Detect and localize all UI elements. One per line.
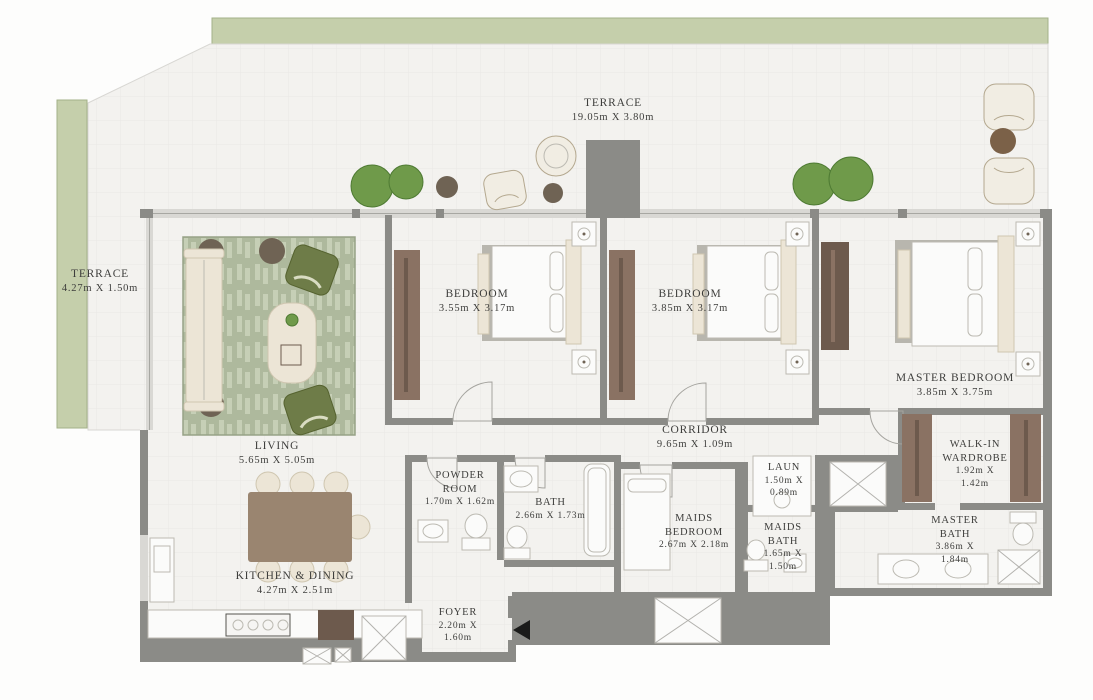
room-dims: 9.65m X 1.09m <box>630 438 760 452</box>
toilet <box>462 538 490 550</box>
master-bed <box>912 242 998 346</box>
label-maids-bedroom: MAIDS BEDROOM2.67m X 2.18m <box>644 512 744 552</box>
room-name: TERRACE <box>533 96 693 111</box>
headboard <box>781 240 796 344</box>
room-dims: 2.20m X 1.60m <box>413 620 503 645</box>
floor-plan: TERRACE19.05m X 3.80m TERRACE4.27m X 1.5… <box>0 0 1093 700</box>
nightstand <box>572 222 596 246</box>
plant <box>793 163 835 205</box>
room-name: KITCHEN & DINING <box>215 569 375 584</box>
room-dims: 5.65m X 5.05m <box>217 454 337 468</box>
room-name: MAIDS BEDROOM <box>644 512 744 539</box>
room-dims: 1.70m X 1.62m <box>414 496 506 508</box>
room-dims: 19.05m X 3.80m <box>533 111 693 125</box>
room-name: BATH <box>503 496 598 510</box>
headboard <box>998 236 1014 352</box>
room-name: BEDROOM <box>417 287 537 302</box>
room-dims: 3.85m X 3.17m <box>630 302 750 316</box>
headboard <box>566 240 581 344</box>
label-corridor: CORRIDOR9.65m X 1.09m <box>630 423 760 452</box>
label-terrace-left: TERRACE4.27m X 1.50m <box>40 267 160 296</box>
label-laundry: LAUN1.50m X 0.89m <box>756 461 812 499</box>
room-name: BEDROOM <box>630 287 750 302</box>
outdoor-chair <box>984 158 1034 204</box>
room-dims: 3.55m X 3.17m <box>417 302 537 316</box>
room-dims: 2.67m X 2.18m <box>644 539 744 551</box>
planter-top <box>212 18 1048 44</box>
label-powder-room: POWDER ROOM1.70m X 1.62m <box>414 469 506 509</box>
room-dims: 3.85m X 3.75m <box>875 386 1035 400</box>
bed-bench <box>898 250 910 338</box>
room-name: MASTER BATH <box>905 514 1005 541</box>
room-dims: 4.27m X 1.50m <box>40 282 160 296</box>
room-dims: 4.27m X 2.51m <box>215 584 375 598</box>
living-room-furniture <box>183 237 355 437</box>
side-table <box>259 238 285 264</box>
label-terrace-top: TERRACE19.05m X 3.80m <box>533 96 693 125</box>
label-foyer: FOYER2.20m X 1.60m <box>413 606 503 644</box>
label-kitchen-dining: KITCHEN & DINING4.27m X 2.51m <box>215 569 375 598</box>
label-living: LIVING5.65m X 5.05m <box>217 439 337 468</box>
nightstand <box>786 222 809 246</box>
label-master-bedroom: MASTER BEDROOM3.85m X 3.75m <box>875 371 1035 400</box>
dining-table <box>248 492 352 562</box>
room-name: FOYER <box>413 606 503 620</box>
room-dims: 2.66m X 1.73m <box>503 510 598 522</box>
kitchen-cabinet <box>318 610 354 640</box>
room-name: LAUN <box>756 461 812 475</box>
table-plant <box>286 314 298 326</box>
label-bedroom-2: BEDROOM3.85m X 3.17m <box>630 287 750 316</box>
pillow <box>550 294 563 332</box>
lounge-chair <box>536 136 576 176</box>
pillow <box>968 294 982 336</box>
side-table <box>543 183 563 203</box>
room-name: WALK-IN WARDROBE <box>925 438 1025 465</box>
pillow <box>765 294 778 332</box>
side-table <box>436 176 458 198</box>
label-walk-in-wardrobe: WALK-IN WARDROBE1.92m X 1.42m <box>925 438 1025 490</box>
room-dims: 3.86m X 1.84m <box>905 541 1005 566</box>
room-name: LIVING <box>217 439 337 454</box>
room-name: POWDER ROOM <box>414 469 506 496</box>
outdoor-table <box>990 128 1016 154</box>
nightstand <box>572 350 596 374</box>
plant <box>351 165 393 207</box>
label-bedroom-1: BEDROOM3.55m X 3.17m <box>417 287 537 316</box>
toilet <box>504 548 530 559</box>
room-name: CORRIDOR <box>630 423 760 438</box>
plant <box>829 157 873 201</box>
label-master-bath: MASTER BATH3.86m X 1.84m <box>905 514 1005 566</box>
room-name: MASTER BEDROOM <box>875 371 1035 386</box>
plant <box>389 165 423 199</box>
sink <box>504 466 538 492</box>
room-name: TERRACE <box>40 267 160 282</box>
pillow <box>765 252 778 290</box>
label-bath: BATH2.66m X 1.73m <box>503 496 598 522</box>
room-name: MAIDS BATH <box>749 521 817 548</box>
terrace-column <box>586 140 640 218</box>
pillow <box>628 479 666 492</box>
outdoor-chair <box>984 84 1034 130</box>
nightstand <box>1016 222 1040 246</box>
room-dims: 1.92m X 1.42m <box>925 465 1025 490</box>
pillow <box>550 252 563 290</box>
toilet <box>1010 512 1036 523</box>
room-dims: 1.50m X 0.89m <box>756 475 812 500</box>
planter-left <box>57 100 87 428</box>
outdoor-chair <box>482 169 528 211</box>
label-maids-bath: MAIDS BATH1.65m X 1.50m <box>749 521 817 573</box>
room-dims: 1.65m X 1.50m <box>749 548 817 573</box>
pillow <box>968 248 982 290</box>
nightstand <box>786 350 809 374</box>
stove-icon <box>226 614 290 636</box>
